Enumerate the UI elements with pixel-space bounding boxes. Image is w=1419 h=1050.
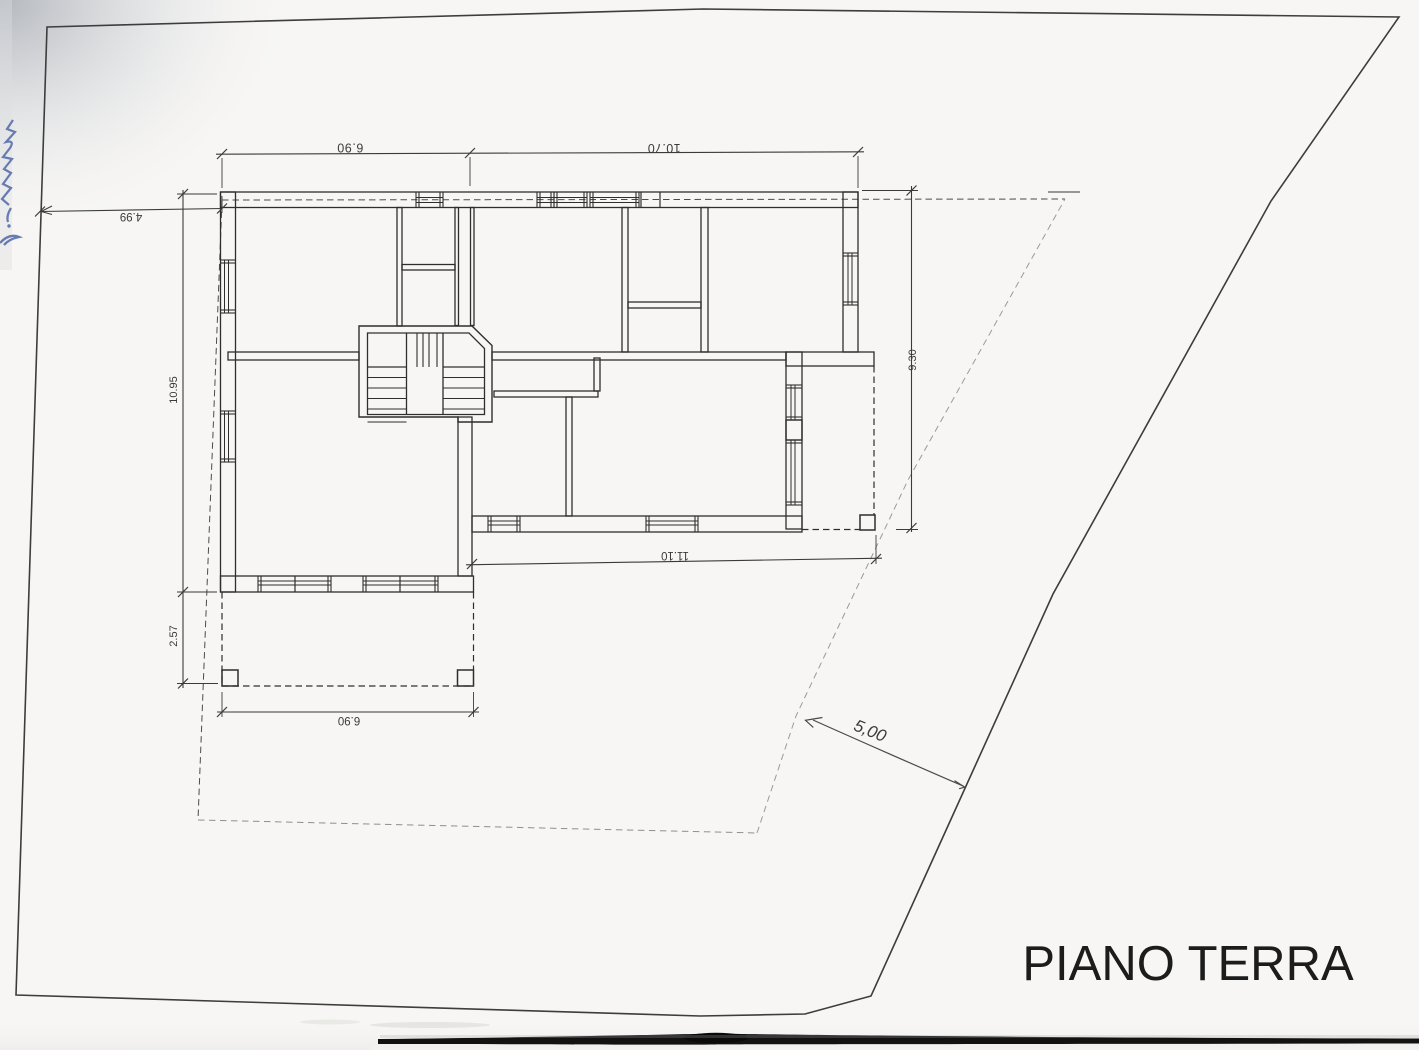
svg-text:10.70: 10.70 — [647, 141, 680, 155]
svg-text:6.90: 6.90 — [338, 714, 360, 726]
svg-text:2.57: 2.57 — [168, 625, 180, 646]
svg-text:6.90: 6.90 — [337, 141, 364, 155]
svg-text:10.95: 10.95 — [168, 376, 180, 404]
svg-text:PIANO TERRA: PIANO TERRA — [1022, 937, 1354, 991]
svg-text:11.10: 11.10 — [661, 549, 689, 561]
svg-text:4.99: 4.99 — [120, 210, 142, 222]
svg-text:9.30: 9.30 — [907, 349, 919, 370]
